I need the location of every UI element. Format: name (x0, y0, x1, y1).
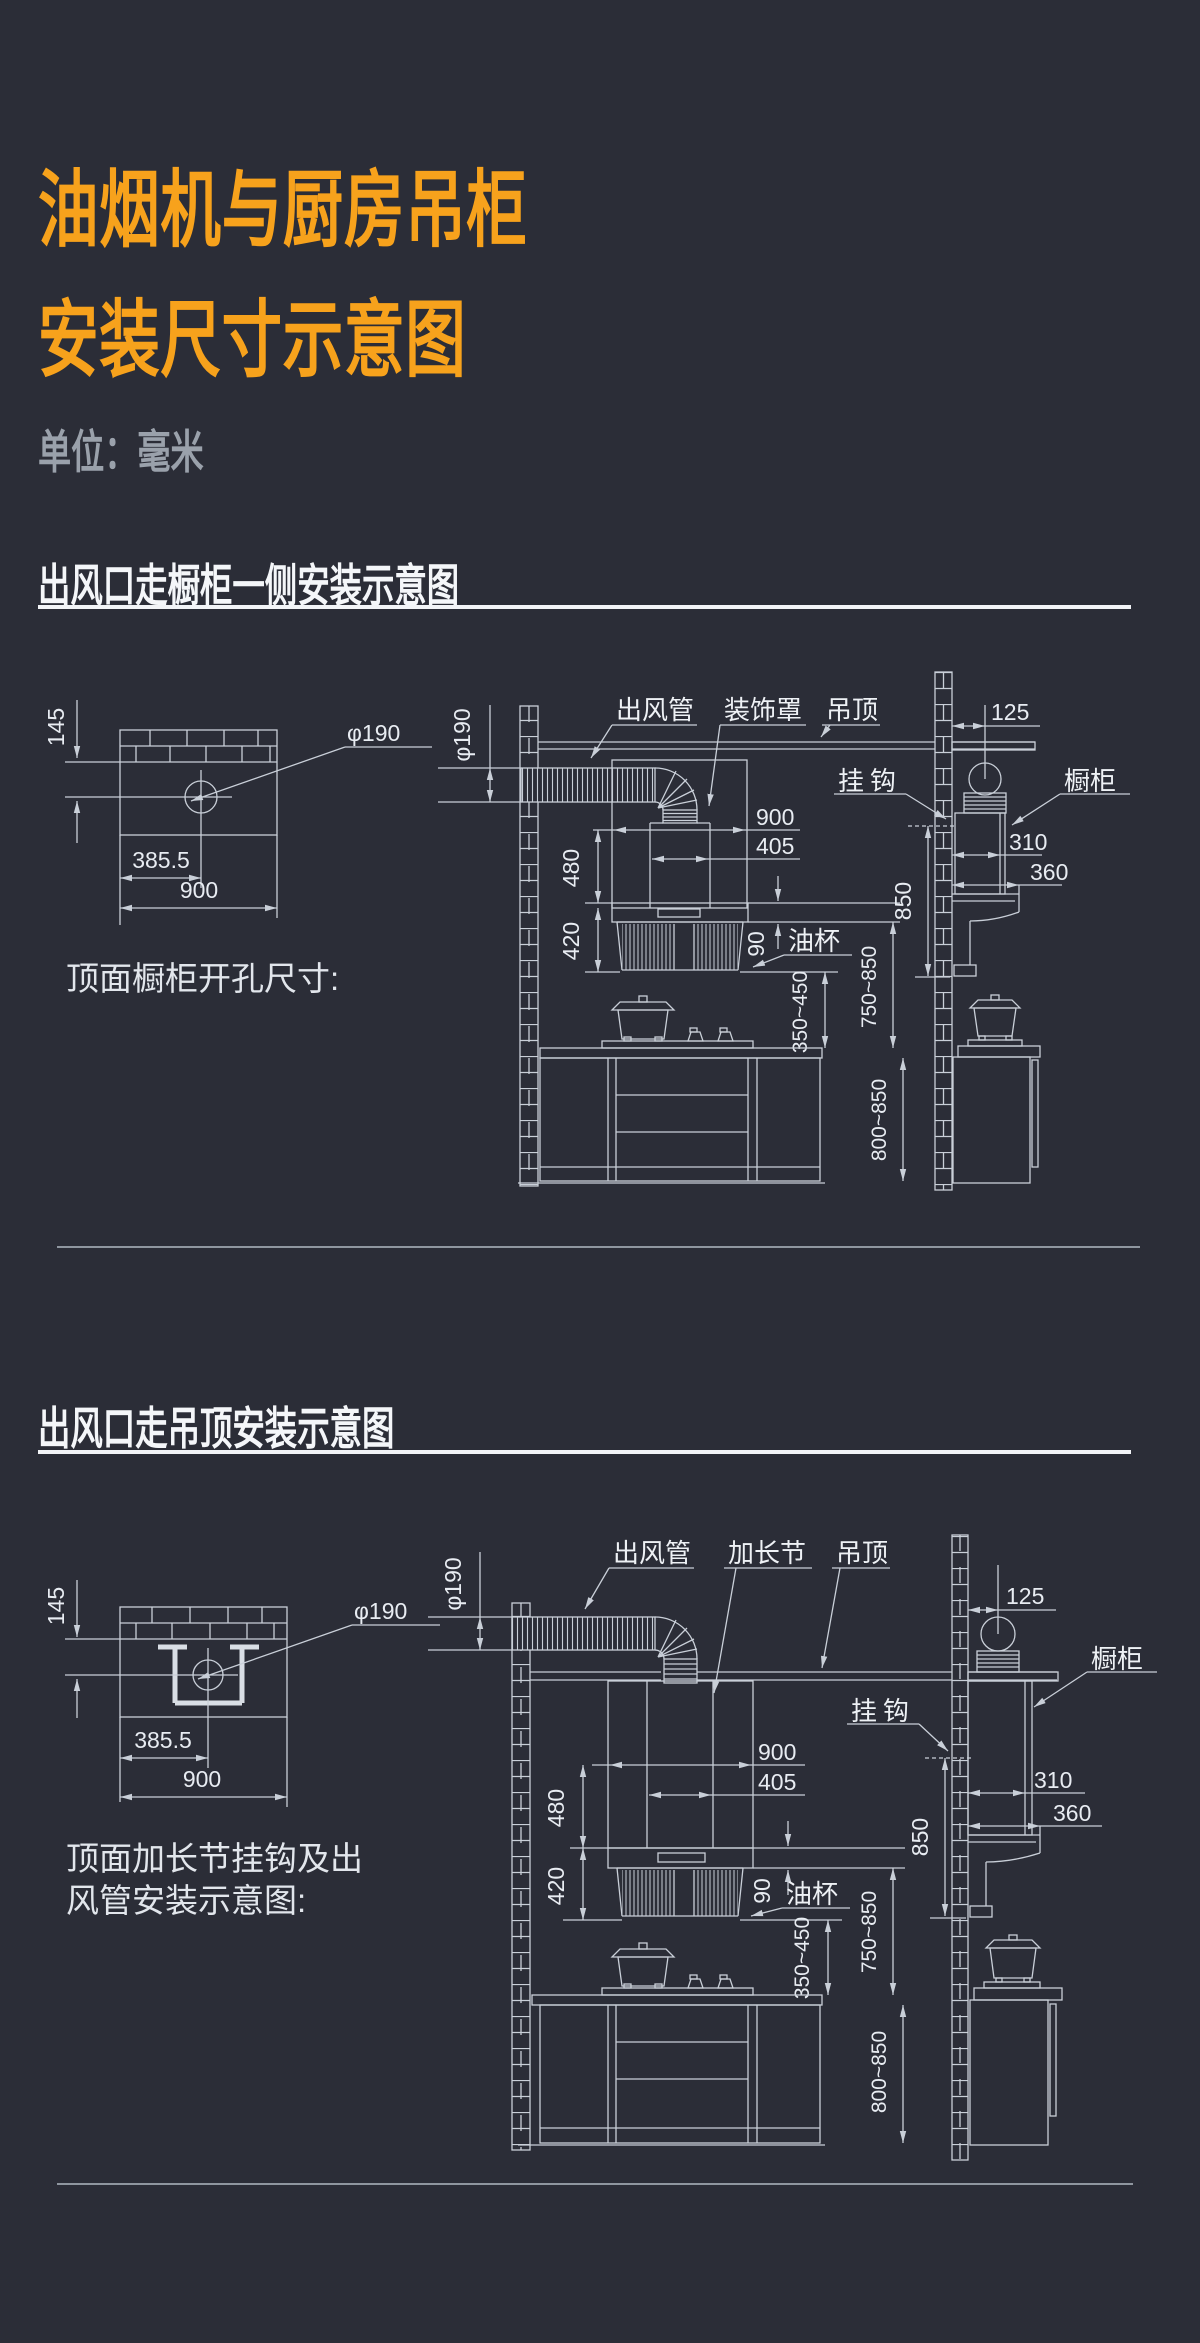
label-cabinet: 橱柜 (1064, 766, 1116, 796)
cad-drawing: 145 385.5 900 φ190 (0, 0, 1200, 2343)
dim-wall-gap-2: 125 (1006, 1583, 1044, 1609)
s2-base-cabinet (518, 2005, 825, 2145)
label-ceiling: 吊顶 (826, 695, 878, 725)
dim-opening-width: 900 (180, 877, 218, 903)
s1-hood-profile (915, 894, 1019, 977)
dim-hood-clearance-2: 750~850 (858, 1891, 881, 1973)
dim-hood-width-2: 900 (758, 1739, 796, 1765)
s1-base-cabinet (518, 1058, 825, 1183)
dim-hood-clearance: 750~850 (858, 946, 881, 1028)
dim-hood-depth: 360 (1030, 859, 1068, 885)
s2-counter-stove (532, 1943, 822, 2005)
s2-hood-profile (930, 1835, 1040, 1918)
dim-wall-gap: 125 (991, 699, 1029, 725)
s2-duct (512, 1617, 697, 1683)
dim-wall-offset: 145 (43, 708, 69, 746)
s1-counter-stove (540, 996, 822, 1058)
s1-hood (612, 903, 748, 970)
label-oil-cup: 油杯 (788, 926, 840, 956)
dim-hood-depth-2: 360 (1053, 1800, 1091, 1826)
s2-hood (608, 1848, 753, 1916)
s2-hole-view: 145 385.5 900 φ190 (43, 1580, 440, 1807)
dim-cabinet-depth: 310 (1009, 829, 1047, 855)
label-hook: 挂钩 (838, 766, 902, 796)
dim-center-offset-2: 385.5 (134, 1727, 192, 1753)
installation-diagram-page: 油烟机与厨房吊柜 安装尺寸示意图 单位：毫米 出风口走橱柜一侧安装示意图 顶面橱… (0, 0, 1200, 2343)
section1-drawing: 145 385.5 900 φ190 (43, 672, 1130, 1190)
dim-wall-offset-2: 145 (43, 1587, 69, 1625)
s2-side-wall (952, 1535, 968, 2160)
s1-upper-cabinet (955, 813, 1005, 894)
dim-duct-dia-2: φ190 (440, 1557, 466, 1610)
dim-hook-height: 850 (890, 882, 916, 920)
dim-counter-height: 800~850 (868, 1079, 891, 1161)
dim-hood-height-2: 420 (543, 1867, 569, 1905)
label-decor-cover: 装饰罩 (724, 695, 802, 725)
dim-counter-height-2: 800~850 (868, 2031, 891, 2113)
label-oil-cup-2: 油杯 (786, 1879, 838, 1909)
dim-min-clearance-2: 350~450 (791, 1917, 814, 1999)
dim-duct-dia: φ190 (449, 708, 475, 761)
section2-drawing: 145 385.5 900 φ190 (43, 1535, 1157, 2160)
dim-cabinet-depth-2: 310 (1034, 1767, 1072, 1793)
dim-hole-diameter-2: φ190 (354, 1598, 407, 1624)
dim-hood-width: 900 (756, 804, 794, 830)
dim-upper-height-2: 480 (543, 1789, 569, 1827)
dim-chimney-width: 405 (756, 833, 794, 859)
s1-chimney (650, 823, 710, 908)
label-extension: 加长节 (728, 1538, 806, 1568)
dim-opening-width-2: 900 (183, 1766, 221, 1792)
s1-side-counter (953, 995, 1040, 1183)
dim-chimney-width-2: 405 (758, 1769, 796, 1795)
s1-hole-view: 145 385.5 900 φ190 (43, 700, 432, 925)
label-duct: 出风管 (616, 695, 694, 725)
dim-upper-height: 480 (558, 849, 584, 887)
dim-min-clearance: 350~450 (789, 971, 812, 1053)
label-ceiling-2: 吊顶 (836, 1538, 888, 1568)
s2-side-counter (970, 1935, 1062, 2145)
dim-hole-diameter: φ190 (347, 720, 400, 746)
s1-duct (521, 768, 697, 823)
dim-hood-height: 420 (558, 922, 584, 960)
s1-side-wall (935, 672, 952, 1190)
label-hook-2: 挂钩 (851, 1696, 915, 1726)
dim-canopy-height: 90 (743, 931, 769, 957)
label-duct-2: 出风管 (613, 1538, 691, 1568)
s2-wall (512, 1603, 530, 2150)
label-cabinet-2: 橱柜 (1091, 1644, 1143, 1674)
dim-center-offset: 385.5 (132, 847, 190, 873)
s2-upper-cabinet (968, 1681, 1032, 1835)
dim-canopy-height-2: 90 (749, 1878, 775, 1904)
dim-hook-height-2: 850 (907, 1818, 933, 1856)
